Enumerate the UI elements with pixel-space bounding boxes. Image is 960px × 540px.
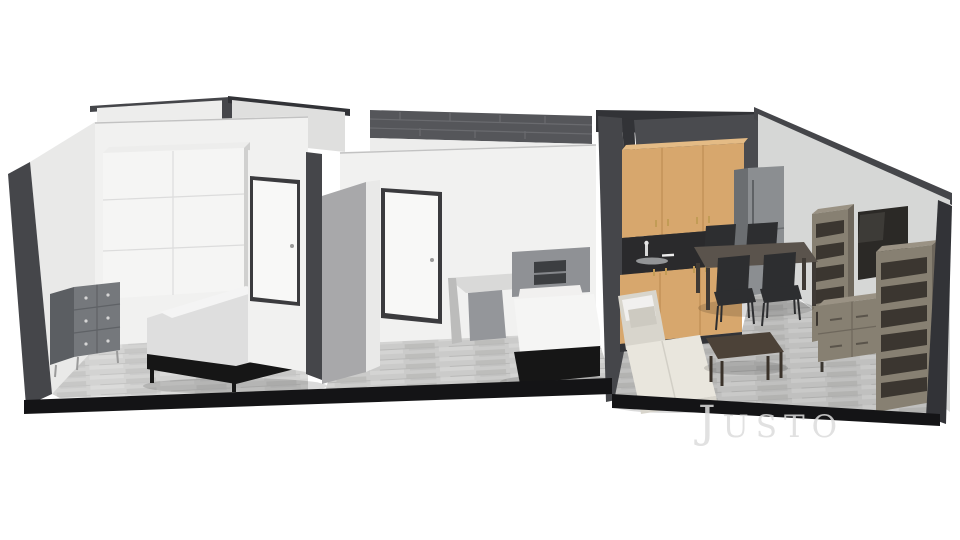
single-bed bbox=[500, 247, 616, 389]
partition-edge-1 bbox=[306, 152, 322, 380]
wall-pillar bbox=[322, 180, 380, 384]
interior-door-bedroom2 bbox=[381, 188, 442, 324]
coffee-table-shadow bbox=[704, 361, 788, 375]
kitchen-living-room bbox=[598, 107, 952, 424]
pillar-edge bbox=[366, 180, 380, 372]
watermark: Justo bbox=[694, 397, 844, 448]
door2-leaf bbox=[385, 192, 438, 319]
pillar-face bbox=[322, 182, 366, 384]
faucet bbox=[645, 244, 648, 256]
upper-cabinets bbox=[622, 143, 744, 238]
bedroom-middle bbox=[322, 144, 616, 396]
dresser-side bbox=[50, 287, 74, 365]
desk-cabinet bbox=[468, 290, 506, 341]
floor-plan-render: Justo bbox=[0, 0, 960, 540]
bedroom-left bbox=[8, 116, 327, 406]
interior-door-bedroom1 bbox=[250, 176, 300, 306]
door1-handle bbox=[290, 244, 294, 248]
door1-leaf bbox=[253, 180, 297, 302]
sink-basin bbox=[636, 258, 668, 265]
apartment-3d-cutaway: Justo bbox=[0, 0, 960, 540]
single-bed-mattress bbox=[514, 294, 600, 354]
tv-reflection bbox=[858, 212, 885, 243]
bathroom-tile-wall bbox=[370, 110, 592, 144]
door2-handle bbox=[430, 258, 434, 262]
dining-shadow bbox=[698, 299, 814, 317]
wardrobe bbox=[103, 142, 250, 299]
